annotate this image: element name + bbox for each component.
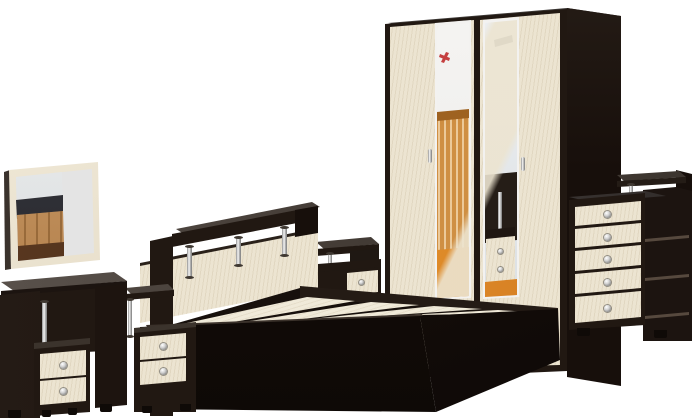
bed-headboard-post-3 [282,228,287,256]
chest-side-shelf-section [0,0,700,420]
bed-slat-1 [0,0,700,420]
dressing-table [0,0,700,420]
dressing-table-left-panel [0,0,700,420]
wardrobe-left-mirror-crib [0,0,700,420]
dressing-table-back-panel [0,0,700,420]
bed-headboard-left-upright [0,0,700,420]
wardrobe-left-mirror-reflection-stripes [0,0,700,420]
chest-front-carcass [0,0,700,420]
chest-right-back-panel [0,0,700,420]
wardrobe-left-mirror-crib-rail [0,0,700,420]
chest-top-surface [0,0,700,420]
dressing-table-foot-far-left [8,410,21,418]
nightstand-left-drawer-2 [0,0,700,420]
chest-drawer-2 [0,0,700,420]
chest-knob-2 [604,234,611,241]
bed-headboard-post-1 [187,247,192,278]
nightstand-right-drawer [0,0,700,420]
bed-far-rail [0,0,700,420]
chest-drawer-3 [0,0,700,420]
wardrobe-right-mirror-border [0,0,700,420]
chest-foot-left [577,328,590,336]
nightstand-left-drawer-1 [0,0,700,420]
dressing-table-pedestal-foot-left [42,410,51,417]
scene-bedroom-furniture-set [0,0,700,420]
dressing-table-drawer-2 [0,0,700,420]
nightstand-left-knob-2 [160,368,167,375]
wardrobe-right-door [0,0,700,420]
wardrobe-right-side-panel [0,0,700,420]
bed-base-front-top-edge [0,0,700,420]
chest-side-shelf-3 [0,0,700,420]
wall-mirror-reflection-floor [0,0,700,420]
wardrobe-left-mirror-floor [0,0,700,420]
bed-headboard-post-2 [236,238,241,266]
dressing-table-pedestal-foot-right [68,408,77,415]
bed-base-right-side [0,0,700,420]
wardrobe-right-mirror-ceiling-fixture [0,0,700,420]
wall-mirror-reflection-counter [0,0,700,420]
wall-mirror-glass [0,0,700,420]
dressing-table-post-cap-top [40,300,49,303]
bed-base-deck [0,0,700,420]
nightstand-left-body [0,0,700,420]
nightstand-left-chrome-post [128,300,132,337]
nightstand-left-knob-1 [160,343,167,350]
dressing-table-top-front-edge [0,0,700,420]
bed-headboard-panel [0,0,700,420]
dressing-table-post-cap-base [40,343,49,346]
wardrobe-left-door [0,0,700,420]
wall-mirror-frame [0,0,700,420]
bed-post-3-cap-base [280,254,289,257]
wardrobe-right-mirror-reflection-stripes [0,0,700,420]
bed-headboard-top-edge [0,0,700,420]
wardrobe-right-mirror-cabinet [0,0,700,420]
chest-shelf-front [0,0,700,420]
wardrobe-right-mirror-desk [0,0,700,420]
chest-knob-3 [604,256,611,263]
bed-post-2-cap-base [234,264,243,267]
wardrobe-right-mirror [0,0,700,420]
chest-of-drawers [0,0,700,420]
dressing-table-pedestal-body [0,0,700,420]
wardrobe [0,0,700,420]
chest-side-shelf-2 [0,0,700,420]
wall-mirror-reflection-wall [0,0,700,420]
nightstand-left-post-cap-top [126,298,134,301]
wardrobe-left-door-handle [428,149,432,163]
bed-slat-4 [0,0,700,420]
nightstand-right-shelf-top [0,0,700,420]
chest-shelf-top [0,0,700,420]
chest-shelf-chrome-post [629,185,633,197]
wardrobe-right-door-handle [521,157,525,171]
bed-slat-2 [0,0,700,420]
nightstand-right [0,0,700,420]
chest-drawer-4 [0,0,700,420]
nightstand-left-foot-left [142,406,152,413]
chest-drawer-1 [0,0,700,420]
bed-post-1-cap-top [185,245,194,248]
chest-knob-1 [604,211,611,218]
chest-post-cap-top [627,183,635,186]
dressing-table-pedestal-top-sliver [0,0,700,420]
chest-knob-4 [604,279,611,286]
wall-mirror-reflection-plant-icon [0,0,700,420]
nightstand-left-shelf-top [0,0,700,420]
dressing-table-drawer-1 [0,0,700,420]
nightstand-left-top-sliver [0,0,700,420]
chest-knob-5 [604,305,611,312]
wall-mirror-reflection-baskets [0,0,700,420]
nightstand-left [0,0,700,420]
wardrobe-left-mirror [0,0,700,420]
dressing-table-chrome-post [42,302,47,345]
chest-foot-right [654,330,667,338]
bed-headboard-shelf-endcap [0,0,700,420]
nightstand-left-post-cap-base [126,335,134,338]
nightstand-right-shelf-front [0,0,700,420]
nightstand-right-cabinet-body [0,0,700,420]
wardrobe-right-mirror-floor [0,0,700,420]
wardrobe-top-surface [0,0,700,420]
nightstand-right-drawer-knob [359,280,364,285]
wardrobe-left-mirror-red-mark [0,0,700,420]
nightstand-right-cabinet-top [0,0,700,420]
bed-base-front-face [0,0,700,420]
bed-slat-3 [0,0,700,420]
wardrobe-left-mirror-red-mark2 [0,0,700,420]
wall-mirror [0,0,700,420]
wardrobe-left-mirror-toys [0,0,700,420]
dressing-table-knob-2 [60,388,67,395]
dressing-table-right-leg-panel [0,0,700,420]
dressing-table-knob-1 [60,362,67,369]
nightstand-right-back-panel [0,0,700,420]
bed-post-1-cap-base [185,276,194,279]
chest-drawer-5 [0,0,700,420]
wardrobe-left-mirror-border [0,0,700,420]
nightstand-left-shelf-front [0,0,700,420]
wall-mirror-side-edge [0,0,700,420]
wardrobe-right-mirror-cabinet-knob-2 [498,267,503,272]
wardrobe-front-carcass [0,0,700,420]
nightstand-left-foot-right [180,404,191,411]
bed-post-3-cap-top [280,226,289,229]
bed-post-2-cap-top [234,236,243,239]
bed [0,0,700,420]
wardrobe-right-mirror-chrome-leg [498,192,502,232]
bed-headboard-shelf-top [0,0,700,420]
chest-side-shelf-1 [0,0,700,420]
bed-headboard-shelf-front [0,0,700,420]
wardrobe-right-mirror-cabinet-knob-1 [498,249,503,254]
nightstand-right-chrome-post [328,254,332,268]
nightstand-right-post-cap [326,252,334,255]
wardrobe-right-mirror-cabinet-top [0,0,700,420]
dressing-table-top-surface [0,0,700,420]
dressing-table-foot-right [100,404,112,412]
